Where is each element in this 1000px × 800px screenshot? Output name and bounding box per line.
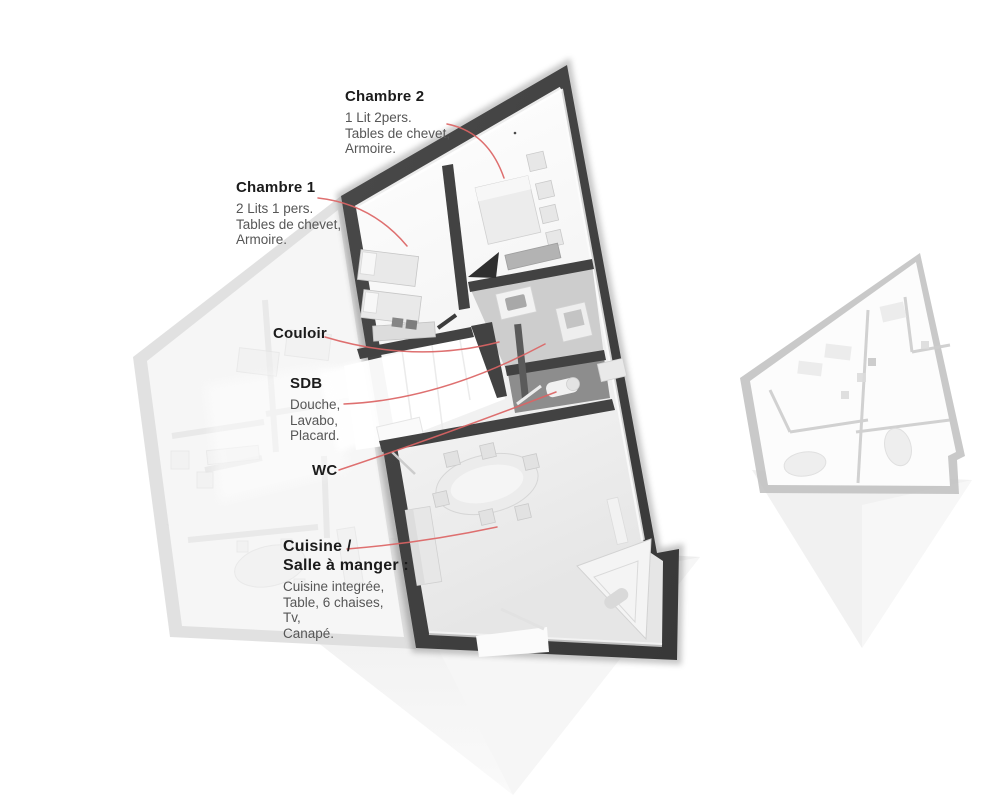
floor-dot (514, 132, 517, 135)
label-chambre-2-detail: Armoire. (345, 141, 450, 157)
label-couloir: Couloir (273, 325, 327, 343)
label-cuisine-detail: Canapé. (283, 626, 409, 642)
label-chambre-2-detail: Tables de chevet, (345, 126, 450, 142)
pillow-1 (360, 252, 377, 276)
label-cuisine-title-1: Cuisine / (283, 537, 409, 556)
toilet-seat (567, 378, 580, 391)
label-chambre-1-detail: Tables de chevet, (236, 217, 341, 233)
label-couloir-title: Couloir (273, 325, 327, 343)
label-chambre-2-title: Chambre 2 (345, 88, 450, 106)
floorplan-stage: Chambre 2 1 Lit 2pers. Tables de chevet,… (0, 0, 1000, 800)
pillow-2 (363, 292, 378, 313)
label-chambre-1: Chambre 1 2 Lits 1 pers. Tables de cheve… (236, 179, 341, 248)
bedside-cabinet-2 (535, 180, 554, 199)
drawer-2 (405, 319, 417, 329)
bedside-cabinet-1 (526, 151, 546, 171)
label-wc-title: WC (312, 462, 337, 480)
label-cuisine-detail: Tv, (283, 610, 409, 626)
label-sdb-title: SDB (290, 375, 340, 393)
label-chambre-2: Chambre 2 1 Lit 2pers. Tables de chevet,… (345, 88, 450, 157)
label-chambre-1-detail: 2 Lits 1 pers. (236, 201, 341, 217)
label-chambre-1-detail: Armoire. (236, 232, 341, 248)
roof-facet-thumbnail-light (862, 480, 972, 648)
drawer-1 (391, 317, 403, 327)
label-chambre-2-detail: 1 Lit 2pers. (345, 110, 450, 126)
bedside-cabinet-3 (539, 204, 558, 223)
thumbnail-floorplan (740, 253, 965, 494)
label-sdb-detail: Lavabo, (290, 413, 340, 429)
label-cuisine-detail: Table, 6 chaises, (283, 595, 409, 611)
label-sdb-detail: Placard. (290, 428, 340, 444)
label-cuisine: Cuisine / Salle à manger : Cuisine integ… (283, 537, 409, 641)
label-cuisine-detail: Cuisine integrée, (283, 579, 409, 595)
label-wc: WC (312, 462, 337, 480)
floorplan-graphic (0, 0, 1000, 800)
label-cuisine-title-2: Salle à manger : (283, 556, 409, 575)
label-sdb-detail: Douche, (290, 397, 340, 413)
label-sdb: SDB Douche, Lavabo, Placard. (290, 375, 340, 444)
label-chambre-1-title: Chambre 1 (236, 179, 341, 197)
